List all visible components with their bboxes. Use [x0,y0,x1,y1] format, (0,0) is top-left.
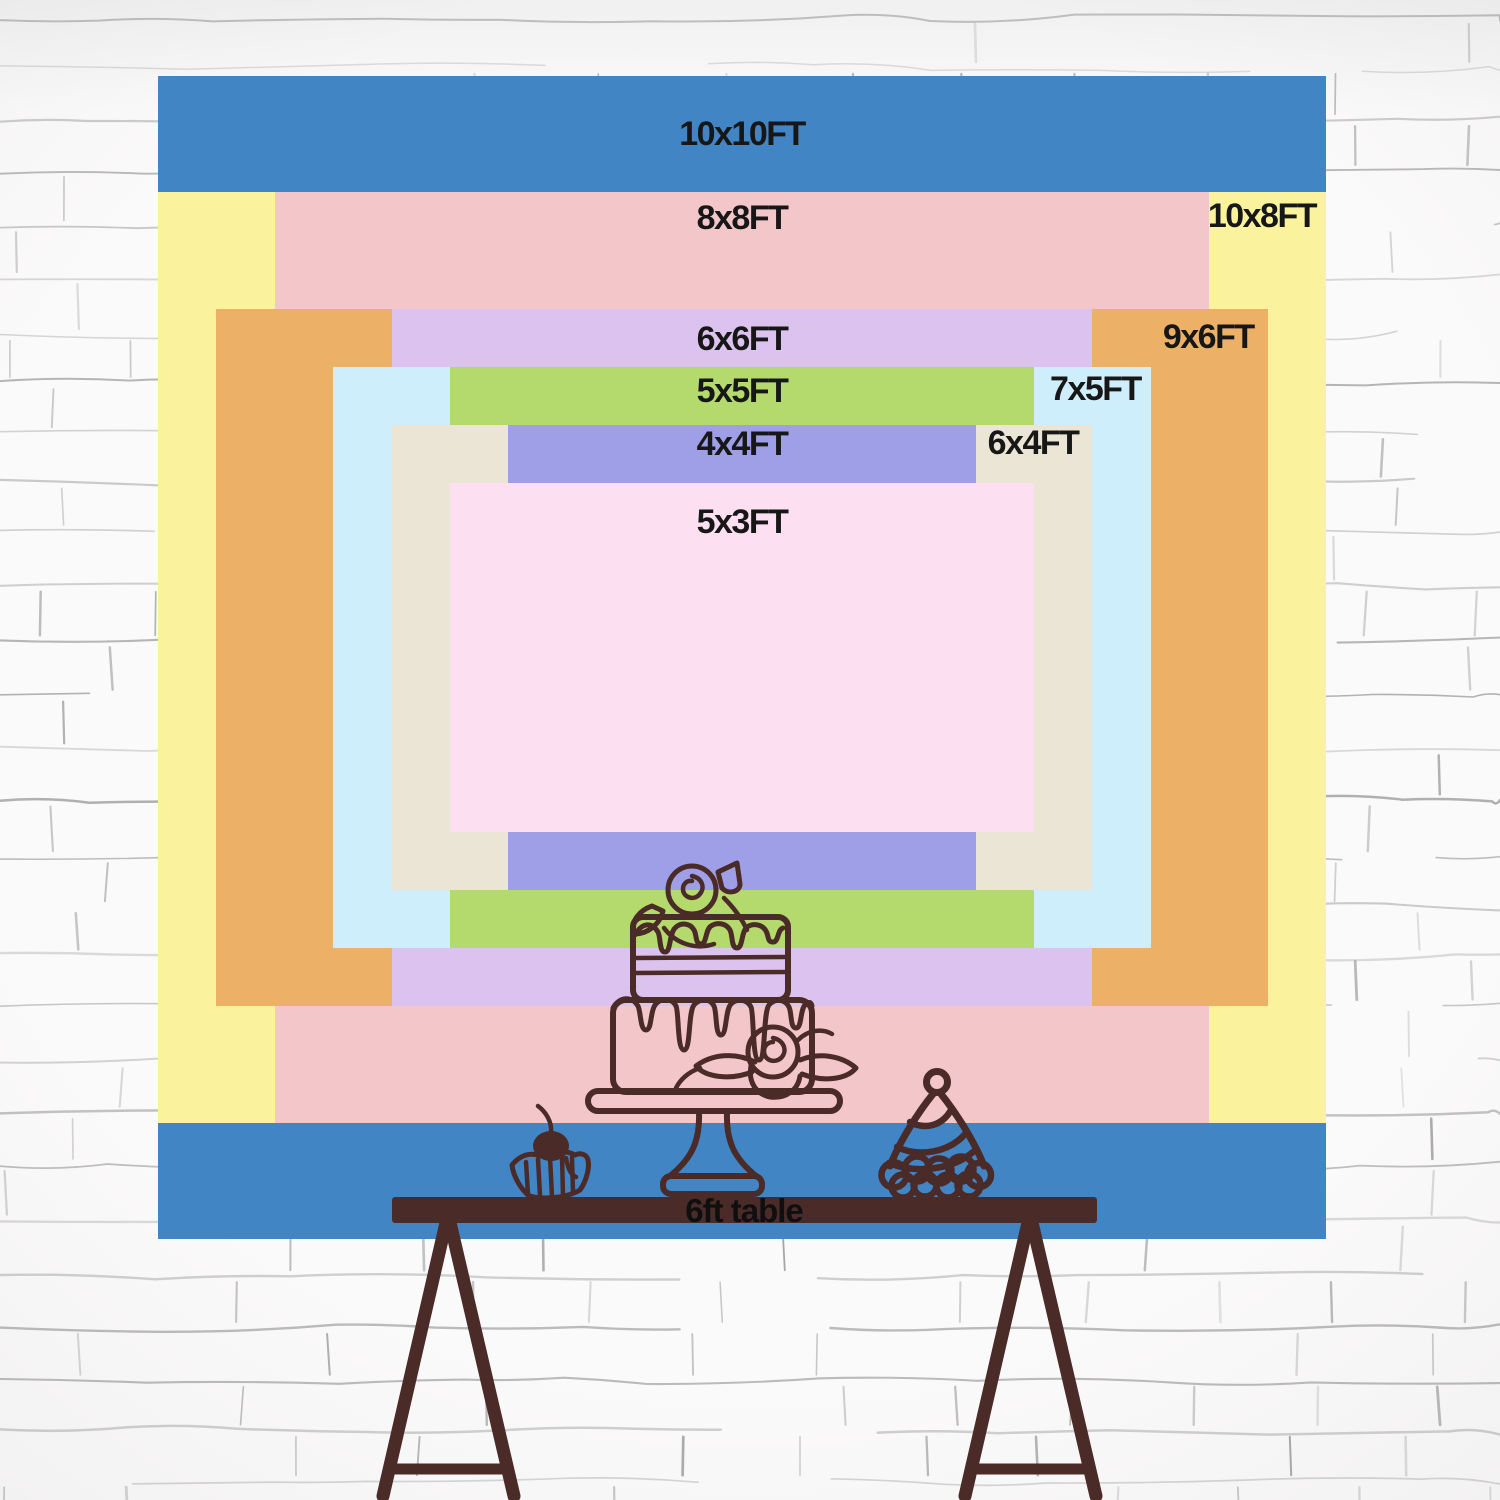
backdrop-size-chart-image: 10x10FT10x8FT8x8FT9x6FT6x6FT7x5FT5x5FT6x… [0,0,1500,1500]
size-label-10x8ft: 10x8FT [1208,196,1316,236]
size-label-8x8ft: 8x8FT [697,198,788,238]
size-label-9x6ft: 9x6FT [1163,317,1254,357]
size-label-6x6ft: 6x6FT [697,319,788,359]
size-label-4x4ft: 4x4FT [697,424,788,464]
size-label-5x3ft: 5x3FT [697,502,788,542]
size-label-7x5ft: 7x5FT [1050,369,1141,409]
size-label-6x4ft: 6x4FT [988,423,1079,463]
size-label-5x5ft: 5x5FT [697,371,788,411]
size-chart: 10x10FT10x8FT8x8FT9x6FT6x6FT7x5FT5x5FT6x… [158,76,1326,1239]
size-label-10x10ft: 10x10FT [679,114,805,154]
table-size-label: 6ft table [685,1191,803,1231]
